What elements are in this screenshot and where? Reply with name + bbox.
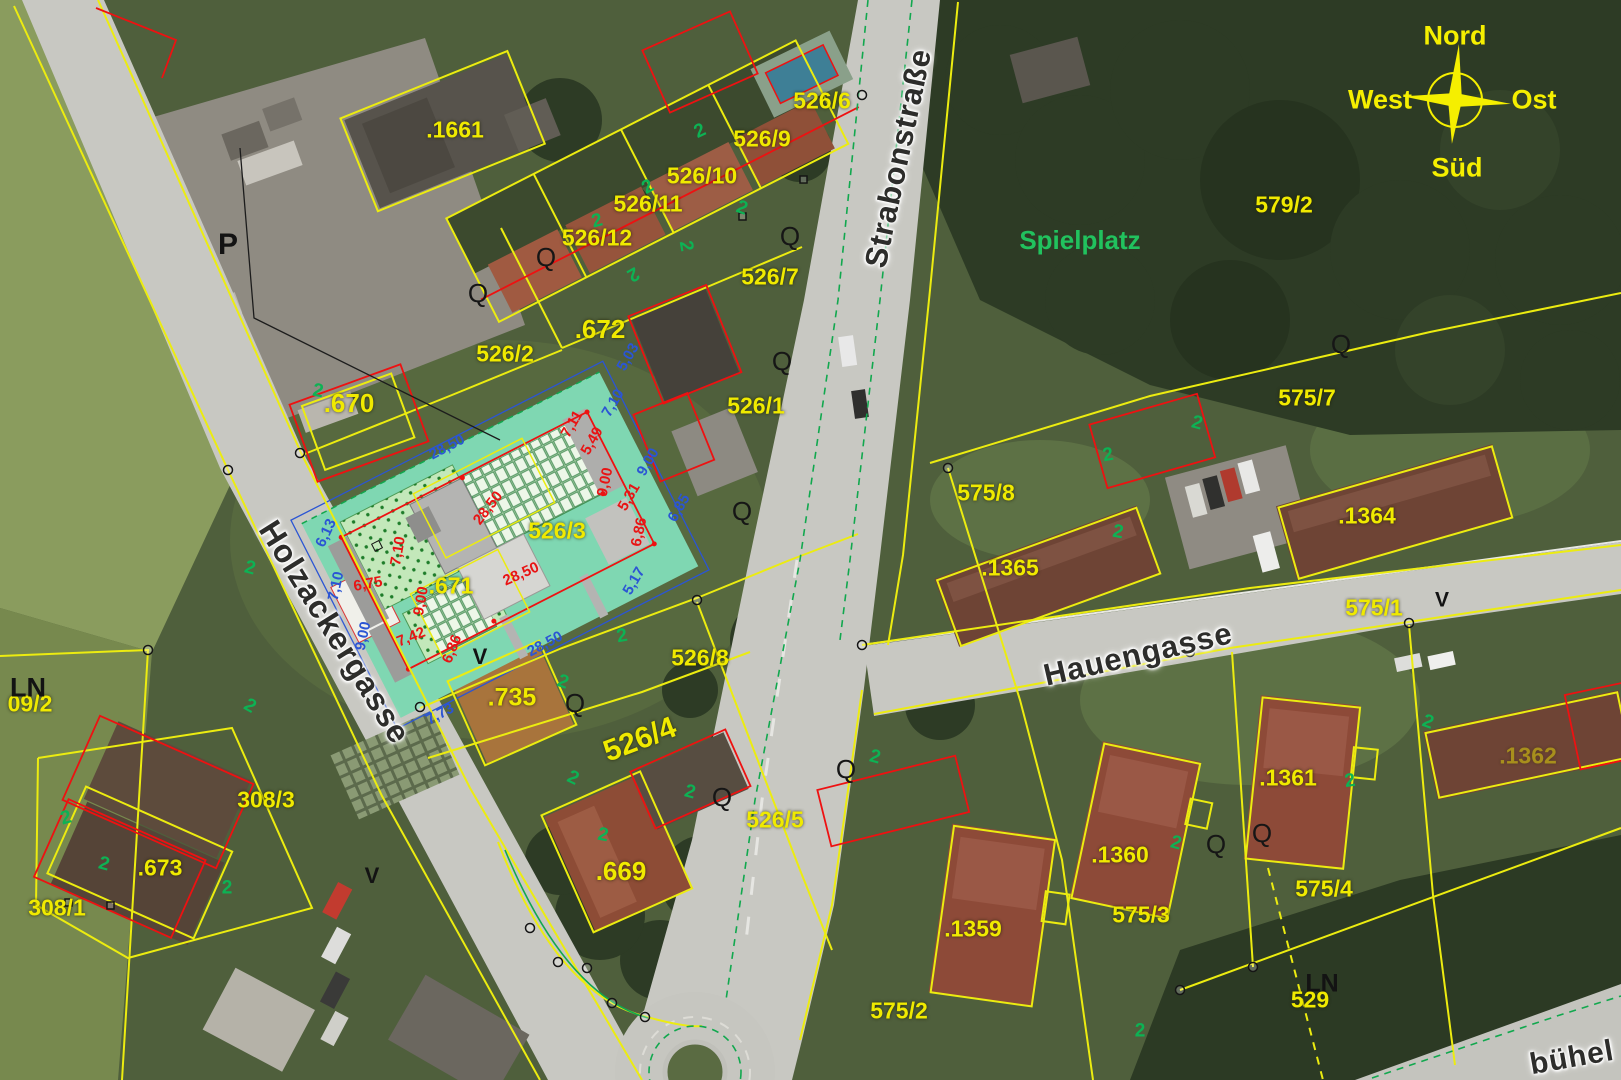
terrain-letter: LN — [1305, 972, 1338, 997]
survey-mark: 2 — [615, 626, 629, 647]
parcel-label: 526/5 — [746, 809, 804, 832]
dimension-label: 9,00 — [634, 446, 662, 479]
dimension-label: 28,50 — [427, 432, 467, 463]
compass-label-west: West — [1348, 87, 1412, 114]
parcel-label: 526/2 — [476, 343, 534, 366]
parcel-label: 308/1 — [28, 897, 86, 920]
tree-symbol: Q — [712, 784, 732, 810]
tree-symbol: Q — [536, 244, 556, 270]
survey-mark: 2 — [1343, 771, 1356, 791]
dimension-label: 9,00 — [411, 585, 431, 616]
dimension-label: 7,10 — [326, 570, 347, 602]
tree-symbol: Q — [565, 690, 585, 716]
survey-mark: 2 — [734, 197, 750, 218]
parcel-label: 526/7 — [741, 266, 799, 289]
terrain-letter: V — [1435, 590, 1449, 611]
dimension-label: 5,17 — [620, 565, 648, 598]
survey-mark: 2 — [96, 853, 111, 874]
parcel-label: 575/2 — [870, 1000, 928, 1023]
dimension-label: 9,00 — [595, 466, 616, 498]
parcel-label: 526/1 — [727, 395, 785, 418]
survey-mark: 2 — [564, 767, 582, 789]
parcel-label: .669 — [596, 858, 647, 884]
dimension-label: 7,10 — [388, 535, 408, 566]
parcel-label: 579/2 — [1255, 194, 1313, 217]
parcel-label: 575/3 — [1112, 904, 1170, 927]
dimension-label: 5,49 — [578, 425, 606, 458]
terrain-letter: V — [473, 646, 488, 668]
dimension-label: 5,03 — [614, 341, 642, 374]
tree-symbol: Q — [1331, 331, 1351, 357]
annotation-layer: Nord West Ost Süd Spielplatz .1661526/65… — [0, 0, 1621, 1080]
compass-label-south: Süd — [1432, 155, 1483, 182]
survey-mark: 2 — [1101, 445, 1115, 466]
survey-mark: 2 — [1135, 1022, 1146, 1041]
parcel-label: .1360 — [1091, 844, 1149, 867]
dimension-label: 7,11 — [558, 408, 585, 440]
dimension-label: 7,10 — [599, 387, 627, 420]
parcel-label: 526/10 — [667, 165, 737, 188]
survey-mark: 2 — [1189, 412, 1204, 433]
dimension-label: 6,75 — [352, 574, 383, 594]
dimension-label: 6,86 — [440, 633, 465, 666]
parcel-label: 526/6 — [793, 90, 851, 113]
parcel-label: .673 — [138, 857, 183, 880]
street-name: bühel — [1528, 1036, 1617, 1080]
survey-mark: 2 — [682, 781, 697, 802]
tree-symbol: Q — [836, 756, 856, 782]
dimension-label: 28,50 — [501, 560, 541, 589]
survey-mark: 2 — [222, 879, 233, 898]
dimension-label: 5,31 — [615, 481, 643, 514]
parcel-label: 526/4 — [600, 713, 681, 768]
parcel-label: 575/4 — [1295, 878, 1353, 901]
tree-symbol: Q — [780, 223, 800, 249]
terrain-letter: V — [365, 865, 380, 887]
compass-label-east: Ost — [1511, 87, 1556, 114]
playground-label: Spielplatz — [1019, 227, 1140, 253]
cadastral-aerial-map[interactable]: Nord West Ost Süd Spielplatz .1661526/65… — [0, 0, 1621, 1080]
parcel-label: 575/1 — [1345, 597, 1403, 620]
parcel-label: .672 — [575, 316, 626, 342]
survey-mark: 2 — [676, 239, 697, 253]
survey-mark: 2 — [624, 263, 643, 285]
dimension-label: 28,50 — [471, 489, 506, 528]
tree-symbol: Q — [1206, 831, 1226, 857]
survey-mark: 2 — [58, 807, 73, 828]
dimension-label: 6,85 — [665, 492, 693, 525]
dimension-label: 6,13 — [313, 517, 339, 550]
parcel-label: .670 — [324, 390, 375, 416]
survey-mark: 2 — [691, 120, 709, 142]
terrain-letter: LN — [10, 675, 46, 702]
parcel-label: .1365 — [981, 557, 1039, 580]
survey-mark: 2 — [596, 825, 610, 846]
survey-mark: 2 — [867, 746, 882, 767]
parcel-label: .1364 — [1338, 505, 1396, 528]
survey-mark: 2 — [1168, 832, 1183, 853]
compass-label-north: Nord — [1424, 23, 1487, 50]
dimension-label: 6,86 — [629, 516, 650, 548]
street-name: Hauengasse — [1041, 617, 1236, 691]
parcel-label: .1661 — [426, 119, 484, 142]
parcel-label: .735 — [488, 686, 537, 711]
parcel-label: .671 — [429, 575, 474, 598]
parcel-label: 575/8 — [957, 482, 1015, 505]
street-name: Strabonstraße — [860, 46, 937, 271]
survey-mark: 2 — [1420, 711, 1436, 732]
survey-mark: 2 — [241, 695, 260, 717]
parcel-label: 575/7 — [1278, 387, 1336, 410]
dimension-label: 28,50 — [525, 629, 565, 660]
terrain-letter: P — [218, 230, 238, 260]
parcel-label: 526/9 — [733, 128, 791, 151]
survey-mark: 2 — [1111, 522, 1125, 543]
tree-symbol: Q — [732, 498, 752, 524]
tree-symbol: Q — [772, 348, 792, 374]
parcel-label: .1361 — [1259, 767, 1317, 790]
tree-symbol: Q — [1252, 820, 1272, 846]
parcel-label: .1362 — [1499, 745, 1557, 768]
dimension-label: 7,73 — [424, 701, 457, 728]
dimension-label: 7,42 — [395, 625, 428, 650]
survey-mark: 2 — [242, 557, 257, 578]
parcel-label: .1359 — [944, 918, 1002, 941]
parcel-label: 526/8 — [671, 647, 729, 670]
parcel-label: 308/3 — [237, 789, 295, 812]
parcel-label: 526/3 — [528, 520, 586, 543]
dimension-label: 9,00 — [353, 620, 374, 652]
tree-symbol: Q — [468, 280, 488, 306]
